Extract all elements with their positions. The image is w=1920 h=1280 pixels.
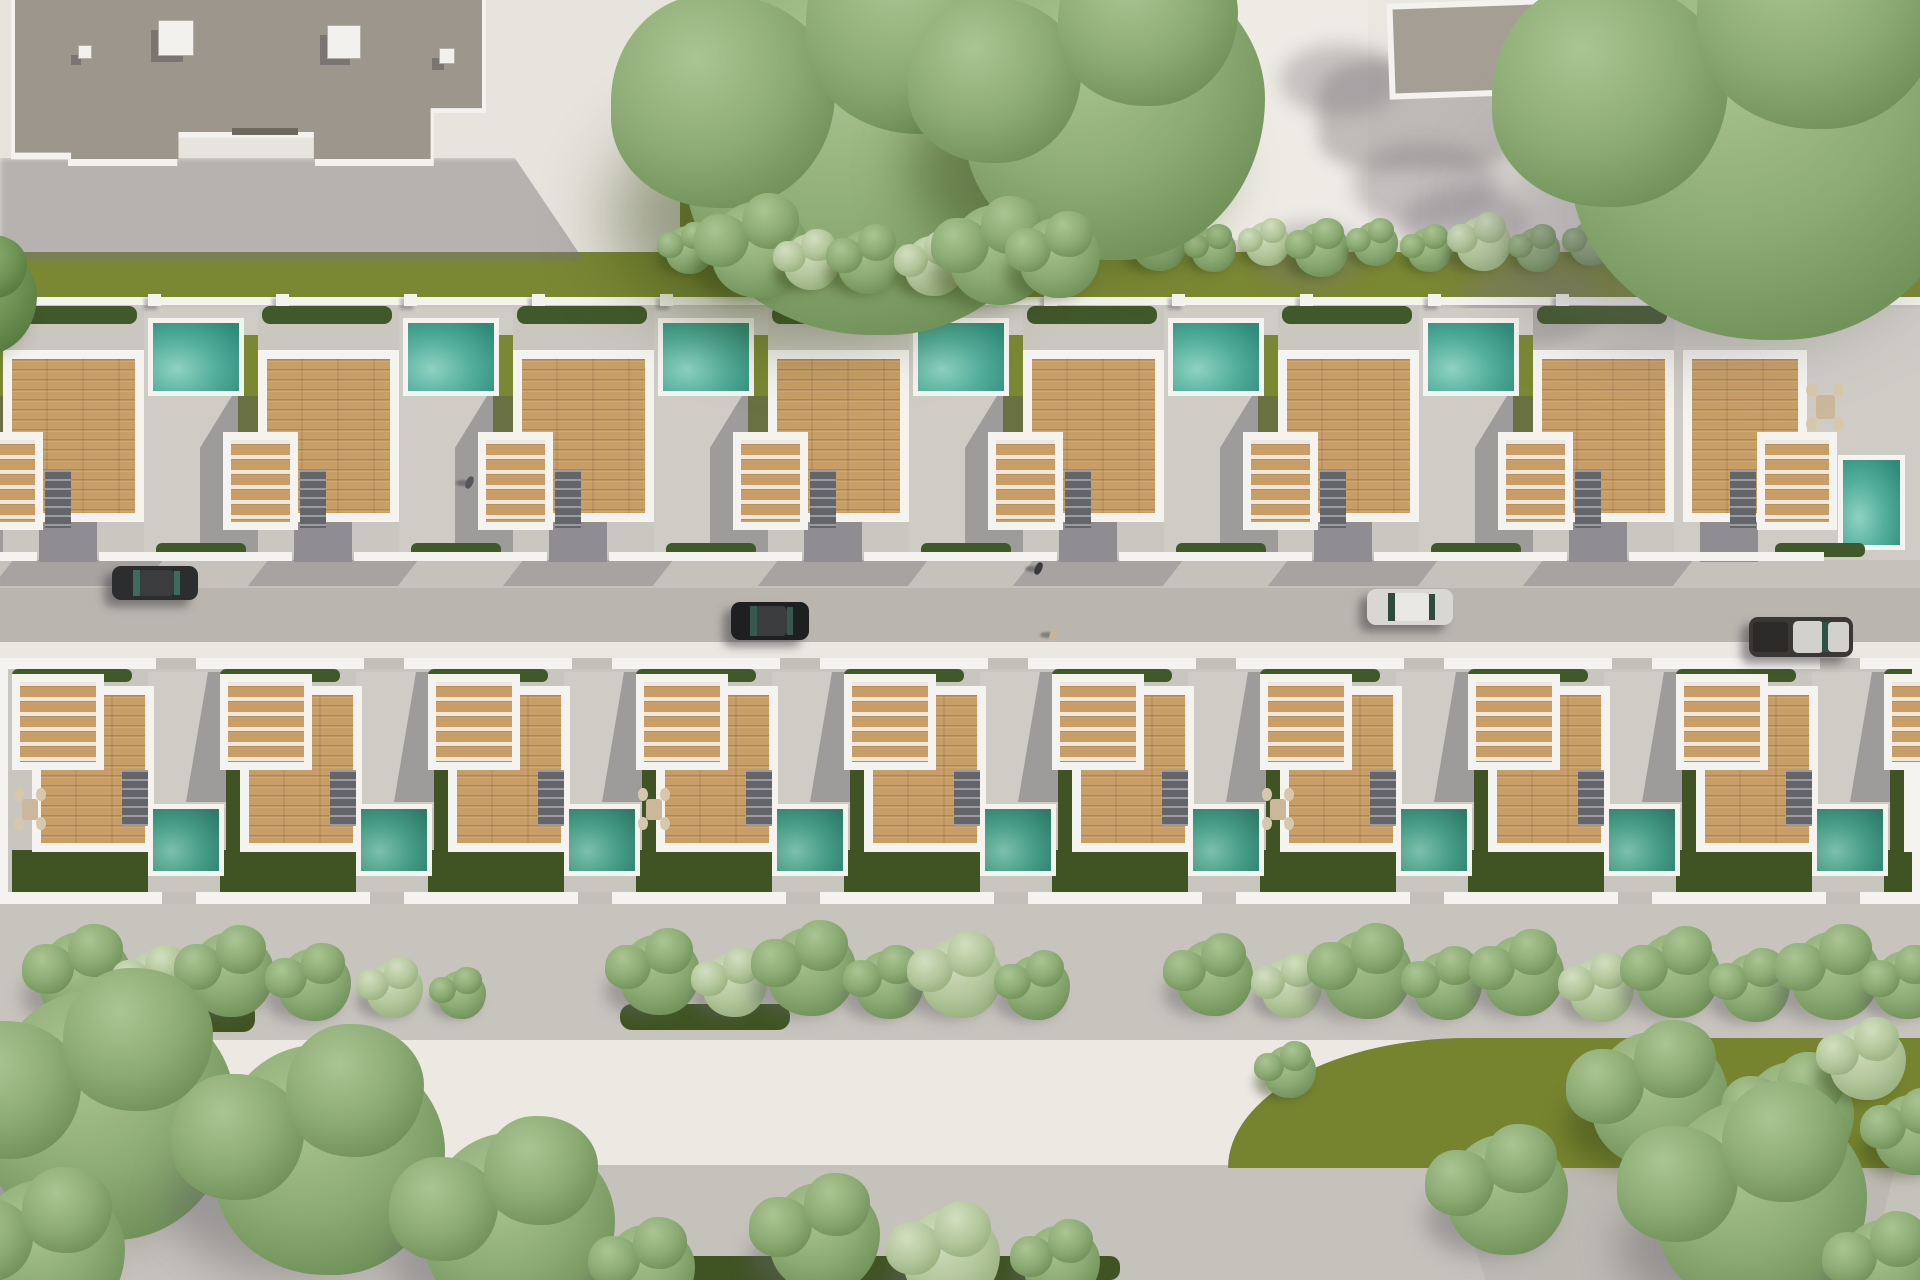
- tree-lump: [1895, 945, 1920, 984]
- tree-lump: [1368, 218, 1394, 243]
- tree-lump: [286, 1024, 424, 1156]
- tree-lump: [804, 1173, 870, 1236]
- patio-chair: [1284, 817, 1294, 830]
- tree-lump: [894, 244, 929, 277]
- tree-lump: [1854, 1017, 1900, 1061]
- tree: [1324, 931, 1412, 1019]
- tree: [1448, 1135, 1568, 1255]
- tree-lump: [1860, 1105, 1906, 1149]
- tree-lump: [1351, 923, 1404, 974]
- tree: [1295, 223, 1349, 277]
- tree-lump: [301, 943, 344, 984]
- tree-lump: [1816, 1034, 1860, 1076]
- driveway: [1569, 522, 1627, 562]
- tree: [367, 962, 423, 1018]
- tree-lump: [605, 945, 651, 989]
- tree-lump: [1634, 1020, 1716, 1098]
- gate-gap: [572, 658, 612, 669]
- tree-lump: [588, 1236, 640, 1280]
- tree-lump: [1617, 1126, 1738, 1242]
- tree-lump: [1662, 926, 1712, 974]
- tree-lump: [633, 1217, 687, 1269]
- patio-chair: [1262, 817, 1272, 830]
- tree-lump: [694, 214, 749, 267]
- front-terrace-deck: [741, 440, 800, 522]
- tree: [838, 230, 902, 294]
- front-wall: [1629, 552, 1677, 561]
- patio-chair: [1833, 417, 1844, 431]
- gate-gap: [994, 892, 1028, 904]
- car-windshield: [133, 570, 140, 596]
- entry-stairs: [1786, 770, 1812, 826]
- front-wall: [397, 552, 547, 561]
- tree-lump: [389, 1157, 498, 1262]
- gate-gap: [1410, 892, 1444, 904]
- truck-bed: [1753, 622, 1788, 652]
- front-wall: [1374, 552, 1422, 561]
- gate-gap: [1612, 658, 1652, 669]
- sidewalk-shadow: [1268, 560, 1438, 586]
- tree-lump: [947, 931, 995, 977]
- car-rear-glass: [1429, 594, 1435, 620]
- tree-lump: [1058, 0, 1238, 106]
- pool-backyard: [1604, 804, 1680, 876]
- car-roof: [1393, 593, 1429, 621]
- tree: [1264, 1046, 1316, 1098]
- patio-chair: [36, 817, 46, 830]
- gate-gap: [1196, 658, 1236, 669]
- front-wall: [652, 552, 802, 561]
- tree-lump: [453, 967, 482, 995]
- gate-gap: [1404, 658, 1444, 669]
- front-terrace-deck: [852, 682, 928, 762]
- tree-lump: [1870, 1211, 1920, 1266]
- front-terrace-deck: [1892, 682, 1920, 762]
- tree: [1177, 940, 1253, 1016]
- tree-lump: [931, 218, 989, 273]
- tree-lump: [858, 224, 896, 261]
- street-curb: [0, 642, 1920, 658]
- garden-bed: [220, 850, 356, 894]
- wall-post: [276, 294, 289, 306]
- patio-chair: [1262, 788, 1272, 801]
- front-wall: [1674, 552, 1824, 561]
- pool-backyard: [1188, 804, 1264, 876]
- patio-chair: [36, 788, 46, 801]
- tree-lump: [907, 948, 953, 992]
- rear-hedge: [1027, 306, 1157, 324]
- tree-lump: [611, 0, 835, 208]
- pool-backyard: [772, 804, 848, 876]
- wall-post: [148, 294, 161, 306]
- tree: [620, 935, 700, 1015]
- entry-stairs: [1370, 770, 1396, 826]
- front-terrace-deck: [486, 440, 545, 522]
- driveway: [294, 522, 352, 562]
- patio-chair: [660, 817, 670, 830]
- aerial-site-render: [0, 0, 1920, 1280]
- entry-stairs: [1578, 770, 1604, 826]
- patio-chair: [638, 788, 648, 801]
- tree-lump: [1469, 946, 1515, 990]
- front-wall: [864, 552, 912, 561]
- tree-lump: [1509, 929, 1557, 975]
- entry-stairs: [810, 470, 836, 528]
- entry-stairs: [555, 470, 581, 528]
- patio-table: [22, 799, 38, 820]
- front-wall: [1417, 552, 1567, 561]
- roof-vent: [78, 45, 92, 59]
- tree-lump: [1485, 1124, 1557, 1193]
- tree-lump: [1010, 1236, 1054, 1278]
- entry-stairs: [746, 770, 772, 826]
- tree-lump: [1048, 1219, 1094, 1263]
- front-terrace-deck: [20, 682, 96, 762]
- entry-stairs: [45, 470, 71, 528]
- tree-lump: [1422, 224, 1448, 249]
- truck-cab: [1793, 621, 1824, 653]
- entry-stairs: [122, 770, 148, 826]
- wall-post: [404, 294, 417, 306]
- entry-stairs: [1575, 470, 1601, 528]
- tree-lump: [749, 1197, 812, 1258]
- patio-chair: [638, 817, 648, 830]
- entry-stairs: [1730, 470, 1756, 528]
- front-terrace-deck: [1684, 682, 1760, 762]
- front-wall: [1119, 552, 1167, 561]
- tree: [1636, 934, 1720, 1018]
- tree: [1874, 951, 1920, 1019]
- tree-lump: [1425, 1150, 1494, 1216]
- front-terrace-deck: [1060, 682, 1136, 762]
- tree-lump: [216, 925, 266, 973]
- front-wall: [907, 552, 1057, 561]
- tree-lump: [1697, 0, 1920, 129]
- roof-vent-line: [232, 128, 298, 135]
- front-terrace-deck: [1251, 440, 1310, 522]
- tree-lump: [1492, 0, 1728, 207]
- pool-backyard: [1168, 318, 1264, 396]
- building-ground-shadow: [0, 158, 585, 262]
- gate-gap: [162, 892, 196, 904]
- rear-hedge: [262, 306, 392, 324]
- pool-backyard: [980, 804, 1056, 876]
- tree: [1246, 222, 1290, 266]
- front-terrace-deck: [1476, 682, 1552, 762]
- patio-chair: [1284, 788, 1294, 801]
- front-terrace-deck: [1268, 682, 1344, 762]
- gate-gap: [364, 658, 404, 669]
- tree-lump: [1163, 950, 1207, 992]
- pool-backyard: [564, 804, 640, 876]
- tree: [1192, 228, 1236, 272]
- sidewalk-shadow: [1523, 560, 1693, 586]
- front-terrace-deck: [231, 440, 290, 522]
- car-rear-glass: [787, 607, 793, 635]
- car-roof: [138, 570, 174, 596]
- gate-gap: [988, 658, 1028, 669]
- tree: [1020, 218, 1100, 298]
- driveway: [1059, 522, 1117, 562]
- tree-lump: [886, 1222, 941, 1275]
- tree-lump: [795, 920, 848, 971]
- tree: [279, 949, 351, 1021]
- tree: [922, 938, 1002, 1018]
- front-wall: [354, 552, 402, 561]
- car-pickup: [1749, 617, 1853, 657]
- tree: [1354, 222, 1398, 266]
- front-wall: [1162, 552, 1312, 561]
- tree-lump: [1822, 1232, 1877, 1280]
- rear-hedge: [517, 306, 647, 324]
- wall-post: [1172, 294, 1185, 306]
- gate-gap: [1820, 658, 1860, 669]
- tree: [1024, 1226, 1100, 1280]
- garden-bed: [428, 850, 564, 894]
- tree-lump: [1045, 211, 1093, 257]
- driveway: [39, 522, 97, 562]
- roof-vent: [439, 48, 455, 64]
- roof-vent: [327, 25, 361, 59]
- pool-backyard: [403, 318, 499, 396]
- front-terrace-deck: [436, 682, 512, 762]
- patio-table: [1270, 799, 1286, 820]
- car-sedan: [1367, 589, 1453, 625]
- car-sedan: [112, 566, 198, 600]
- truck-hood: [1828, 622, 1849, 652]
- tree-lump: [1280, 1041, 1311, 1071]
- garden-bed: [636, 850, 772, 894]
- front-terrace-deck: [644, 682, 720, 762]
- entry-stairs: [1320, 470, 1346, 528]
- entry-stairs: [1162, 770, 1188, 826]
- tree-lump: [1201, 933, 1247, 977]
- tree: [904, 1210, 1000, 1280]
- pool-backyard: [1396, 804, 1472, 876]
- street-asphalt: [0, 588, 1920, 644]
- pool-backyard: [148, 318, 244, 396]
- tree-lump: [908, 0, 1081, 163]
- pool-backyard: [148, 804, 224, 876]
- tree-lump: [1312, 218, 1344, 249]
- sidewalk-shadow: [248, 560, 418, 586]
- pool-backyard: [356, 804, 432, 876]
- driveway: [804, 522, 862, 562]
- tree-lump: [1722, 1081, 1848, 1202]
- garden-bed: [1676, 850, 1812, 894]
- gate-gap: [578, 892, 612, 904]
- front-wall: [609, 552, 657, 561]
- tree: [1408, 228, 1452, 272]
- driveway: [1314, 522, 1372, 562]
- car-suv: [731, 602, 809, 640]
- tree-lump: [384, 957, 418, 989]
- garden-bed: [1468, 850, 1604, 894]
- tree: [425, 1133, 615, 1280]
- entry-stairs: [1065, 470, 1091, 528]
- front-terrace-deck: [1765, 440, 1829, 522]
- wall-post: [1300, 294, 1313, 306]
- car-roof: [754, 606, 787, 636]
- tree-lump: [22, 1167, 112, 1253]
- front-wall: [0, 552, 37, 561]
- gate-gap: [780, 658, 820, 669]
- pool-backyard: [1812, 804, 1888, 876]
- entry-stairs: [330, 770, 356, 826]
- front-terrace-deck: [228, 682, 304, 762]
- driveway: [549, 522, 607, 562]
- tree-lump: [22, 944, 75, 995]
- patio-table: [646, 799, 662, 820]
- front-wall: [99, 552, 147, 561]
- tree: [1484, 936, 1564, 1016]
- front-terrace-deck: [996, 440, 1055, 522]
- tree: [438, 971, 486, 1019]
- car-windshield: [750, 606, 757, 636]
- tree-lump: [1251, 966, 1286, 999]
- wall-post: [532, 294, 545, 306]
- roof-vent: [158, 20, 194, 56]
- gate-gap: [156, 658, 196, 669]
- car-windshield: [1388, 593, 1395, 621]
- front-terrace-deck: [1506, 440, 1565, 522]
- front-terrace-deck: [0, 440, 35, 522]
- patio-chair: [14, 817, 24, 830]
- entry-stairs: [300, 470, 326, 528]
- gate-gap: [370, 892, 404, 904]
- gate-gap: [1826, 892, 1860, 904]
- entry-stairs: [538, 770, 564, 826]
- pool-side: [1838, 455, 1905, 550]
- patio-chair: [660, 788, 670, 801]
- tree: [1830, 1024, 1906, 1100]
- tree: [770, 1183, 880, 1280]
- sidewalk-shadow: [758, 560, 928, 586]
- front-wall: [142, 552, 292, 561]
- gate-gap: [1202, 892, 1236, 904]
- patio-table: [1816, 395, 1835, 419]
- patio-chair: [14, 788, 24, 801]
- wall-post: [1428, 294, 1441, 306]
- tree-lump: [171, 1074, 303, 1201]
- garden-bed: [1260, 850, 1396, 894]
- row-end-wall: [0, 658, 8, 904]
- garden-bed: [1052, 850, 1188, 894]
- tree-lump: [1260, 218, 1286, 243]
- tree-lump: [934, 1201, 992, 1256]
- garden-bed: [844, 850, 980, 894]
- car-rear-glass: [174, 571, 180, 595]
- gate-gap: [786, 892, 820, 904]
- sidewalk-shadow: [503, 560, 673, 586]
- tree-lump: [1206, 224, 1232, 249]
- tree-lump: [1026, 950, 1064, 987]
- tree-lump: [484, 1116, 598, 1225]
- tree-lump: [1566, 1049, 1644, 1124]
- tree-lump: [1005, 228, 1051, 272]
- tree-lump: [645, 928, 693, 974]
- pool-backyard: [1423, 318, 1519, 396]
- gate-gap: [1618, 892, 1652, 904]
- entry-stairs: [954, 770, 980, 826]
- tree: [0, 1180, 125, 1280]
- rear-hedge: [1282, 306, 1412, 324]
- garden-bed: [12, 850, 148, 894]
- tree: [1006, 956, 1070, 1020]
